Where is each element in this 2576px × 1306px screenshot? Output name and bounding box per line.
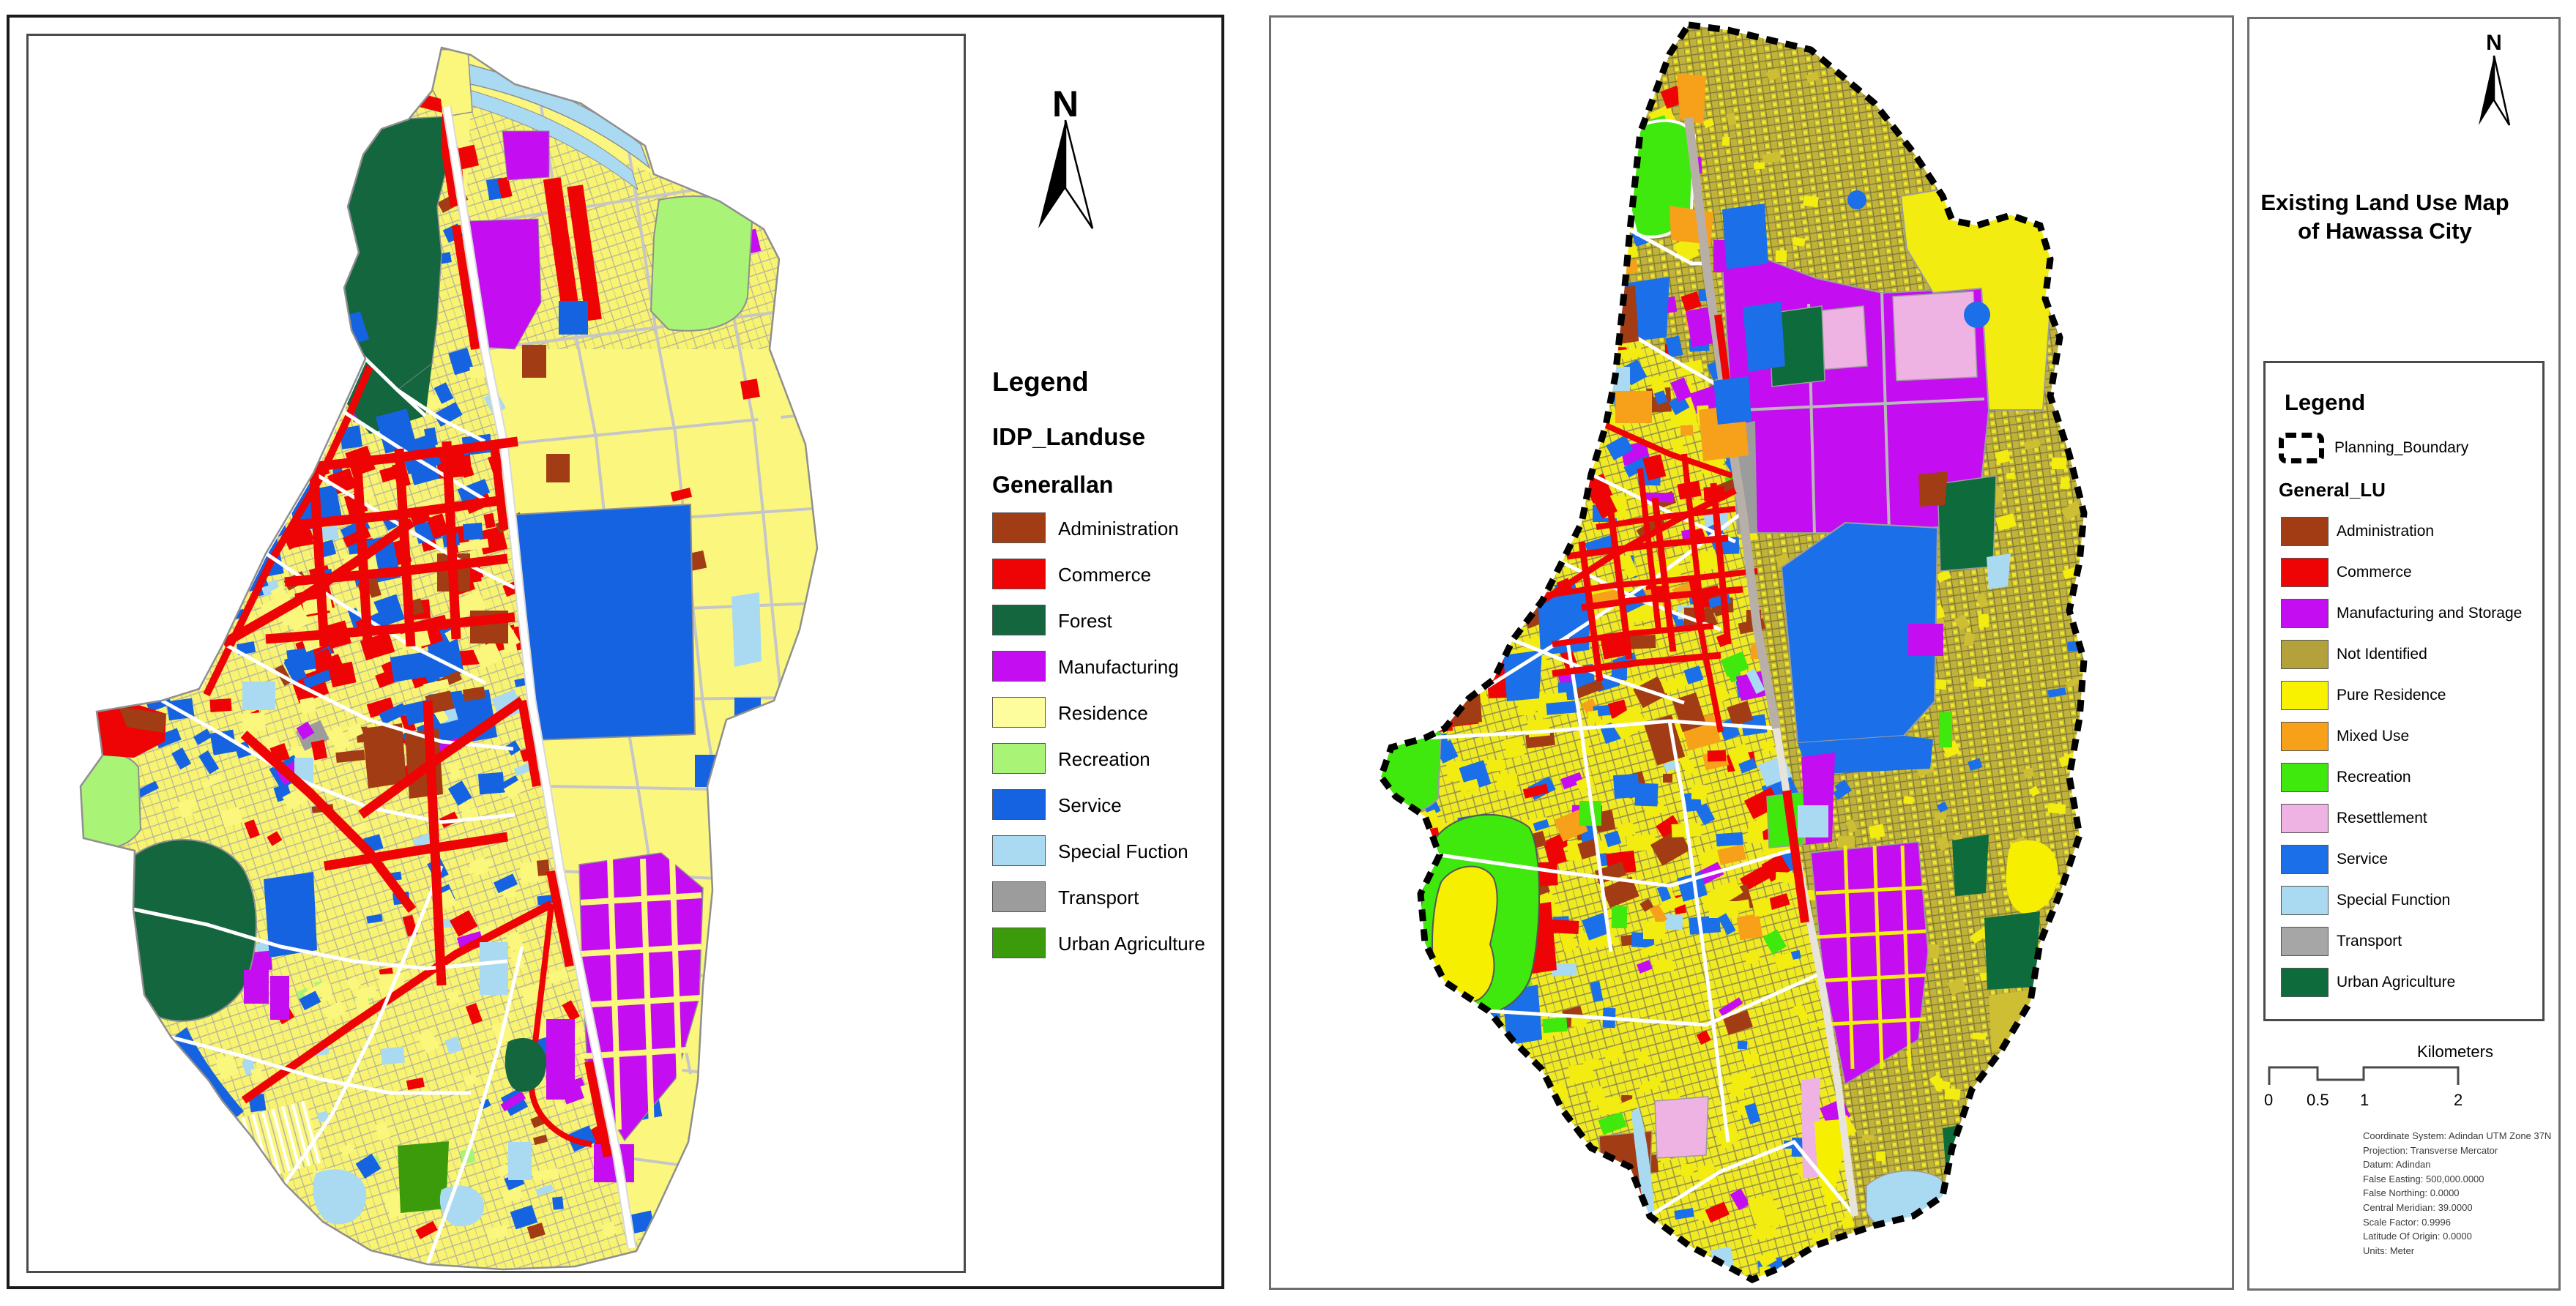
svg-text:N: N bbox=[1052, 83, 1079, 124]
svg-text:N: N bbox=[2486, 31, 2502, 55]
